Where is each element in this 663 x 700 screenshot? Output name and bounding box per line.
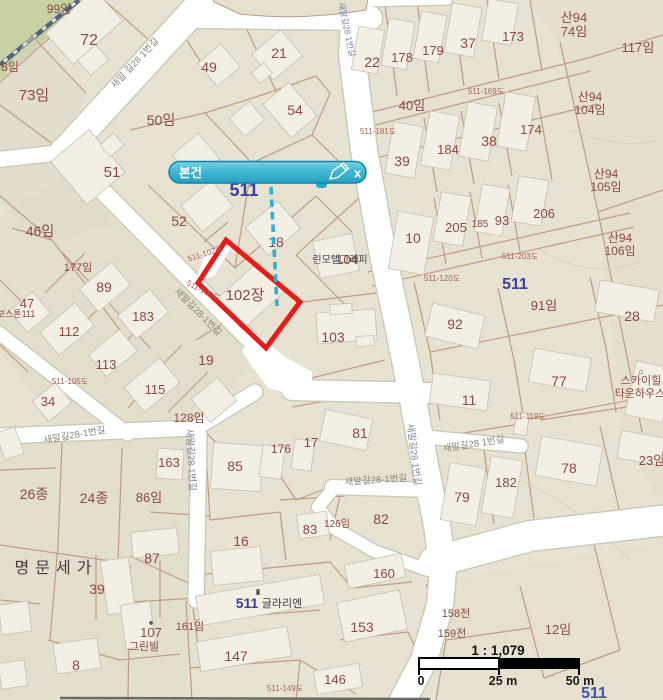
svg-text:93: 93 bbox=[495, 213, 509, 228]
svg-text:147: 147 bbox=[224, 648, 248, 664]
svg-text:128임: 128임 bbox=[173, 411, 204, 425]
svg-text:182: 182 bbox=[495, 475, 517, 490]
svg-text:115: 115 bbox=[145, 382, 166, 397]
svg-text:86임: 86임 bbox=[136, 490, 162, 505]
svg-text:99임: 99임 bbox=[47, 2, 71, 16]
svg-text:146: 146 bbox=[324, 672, 346, 687]
svg-text:89: 89 bbox=[96, 279, 112, 295]
svg-text:163: 163 bbox=[158, 455, 180, 470]
svg-text:50임: 50임 bbox=[147, 112, 175, 128]
svg-text:52: 52 bbox=[171, 213, 187, 229]
svg-text:8: 8 bbox=[72, 657, 80, 673]
svg-text:21: 21 bbox=[271, 45, 287, 61]
svg-text:72: 72 bbox=[80, 32, 98, 49]
svg-text:92: 92 bbox=[447, 316, 463, 332]
svg-text:107: 107 bbox=[140, 625, 162, 640]
svg-text:82: 82 bbox=[373, 511, 389, 527]
svg-text:91임: 91임 bbox=[531, 298, 557, 313]
svg-text:산94: 산94 bbox=[578, 90, 603, 104]
svg-text:78: 78 bbox=[561, 460, 577, 476]
svg-text:22: 22 bbox=[364, 54, 380, 70]
svg-text:511-181도: 511-181도 bbox=[360, 127, 396, 136]
svg-text:8임: 8임 bbox=[1, 60, 19, 74]
svg-text:타운하우스: 타운하우스 bbox=[615, 386, 663, 400]
svg-text:x: x bbox=[354, 166, 362, 181]
svg-text:106임: 106임 bbox=[604, 244, 635, 258]
svg-text:⌂: ⌂ bbox=[639, 367, 644, 376]
svg-text:179: 179 bbox=[422, 43, 444, 58]
svg-text:85: 85 bbox=[227, 458, 243, 474]
svg-text:16: 16 bbox=[233, 533, 249, 549]
svg-text:177임: 177임 bbox=[64, 261, 92, 274]
svg-text:24종: 24종 bbox=[80, 490, 109, 506]
svg-text:112: 112 bbox=[59, 324, 80, 339]
svg-text:73임: 73임 bbox=[19, 87, 50, 104]
svg-text:158전: 158전 bbox=[442, 607, 470, 620]
svg-text:102장: 102장 bbox=[226, 287, 265, 304]
svg-text:126임: 126임 bbox=[324, 517, 350, 530]
svg-text:113: 113 bbox=[96, 357, 117, 372]
svg-text:글라리엔: 글라리엔 bbox=[262, 597, 302, 610]
svg-text:40임: 40임 bbox=[399, 98, 425, 113]
svg-text:39: 39 bbox=[89, 581, 105, 597]
svg-text:178: 178 bbox=[391, 50, 413, 65]
svg-text:0: 0 bbox=[418, 674, 425, 688]
svg-text:511-119도: 511-119도 bbox=[510, 412, 546, 421]
svg-text:본건: 본건 bbox=[179, 165, 202, 180]
svg-text:74임: 74임 bbox=[561, 24, 587, 39]
svg-text:183: 183 bbox=[132, 309, 154, 324]
svg-text:34: 34 bbox=[41, 394, 55, 409]
svg-text:81: 81 bbox=[352, 425, 368, 441]
svg-text:184: 184 bbox=[437, 142, 459, 157]
svg-text:19: 19 bbox=[198, 352, 214, 368]
svg-text:49: 49 bbox=[201, 59, 217, 75]
svg-text:206: 206 bbox=[533, 206, 555, 221]
svg-text:25 m: 25 m bbox=[489, 674, 518, 688]
svg-text:그린빌: 그린빌 bbox=[129, 640, 159, 653]
svg-text:511-149도: 511-149도 bbox=[267, 684, 303, 693]
svg-text:511-105도: 511-105도 bbox=[52, 377, 88, 386]
svg-text:28: 28 bbox=[624, 308, 640, 324]
svg-text:87: 87 bbox=[144, 550, 160, 566]
svg-text:104임: 104임 bbox=[574, 103, 605, 117]
svg-text:26종: 26종 bbox=[20, 486, 49, 502]
svg-text:보스톤111: 보스톤111 bbox=[0, 309, 35, 319]
svg-text:83: 83 bbox=[303, 522, 317, 537]
svg-text:117임: 117임 bbox=[622, 40, 655, 55]
svg-text:18: 18 bbox=[268, 234, 284, 250]
svg-text:산94: 산94 bbox=[561, 10, 587, 25]
svg-text:37: 37 bbox=[460, 35, 476, 51]
svg-text:1 : 1,079: 1 : 1,079 bbox=[471, 643, 524, 658]
svg-text:10: 10 bbox=[405, 230, 421, 246]
svg-text:39: 39 bbox=[394, 153, 410, 169]
svg-text:511: 511 bbox=[502, 276, 528, 293]
svg-text:160: 160 bbox=[373, 566, 395, 581]
svg-text:511-120도: 511-120도 bbox=[424, 274, 460, 283]
svg-text:23임: 23임 bbox=[639, 453, 663, 468]
svg-text:161임: 161임 bbox=[176, 620, 204, 633]
svg-text:159전: 159전 bbox=[438, 627, 466, 640]
svg-text:176: 176 bbox=[271, 442, 291, 456]
svg-text:511-203도: 511-203도 bbox=[502, 252, 538, 261]
svg-text:50 m: 50 m bbox=[566, 674, 595, 688]
svg-text:205: 205 bbox=[445, 220, 467, 235]
svg-text:153: 153 bbox=[350, 619, 374, 635]
svg-text:산94: 산94 bbox=[594, 167, 619, 181]
svg-text:79: 79 bbox=[454, 489, 470, 505]
svg-text:51: 51 bbox=[104, 164, 121, 181]
svg-text:산94: 산94 bbox=[608, 231, 633, 245]
svg-text:린모텔그래피: 린모텔그래피 bbox=[312, 254, 367, 266]
svg-text:103: 103 bbox=[321, 329, 345, 345]
svg-text:174: 174 bbox=[520, 122, 542, 137]
svg-text:77: 77 bbox=[551, 373, 567, 389]
svg-text:11: 11 bbox=[462, 392, 477, 408]
svg-text:105임: 105임 bbox=[590, 180, 621, 194]
svg-text:511-169도: 511-169도 bbox=[468, 87, 504, 96]
svg-text:511: 511 bbox=[236, 595, 259, 611]
svg-text:38: 38 bbox=[481, 133, 497, 149]
svg-text:46임: 46임 bbox=[26, 223, 54, 239]
svg-text:54: 54 bbox=[287, 102, 303, 118]
svg-text:185: 185 bbox=[472, 219, 489, 230]
svg-text:12임: 12임 bbox=[545, 622, 571, 637]
svg-text:명문세가: 명문세가 bbox=[15, 559, 98, 577]
svg-text:173: 173 bbox=[502, 29, 524, 44]
svg-text:17: 17 bbox=[304, 435, 318, 450]
